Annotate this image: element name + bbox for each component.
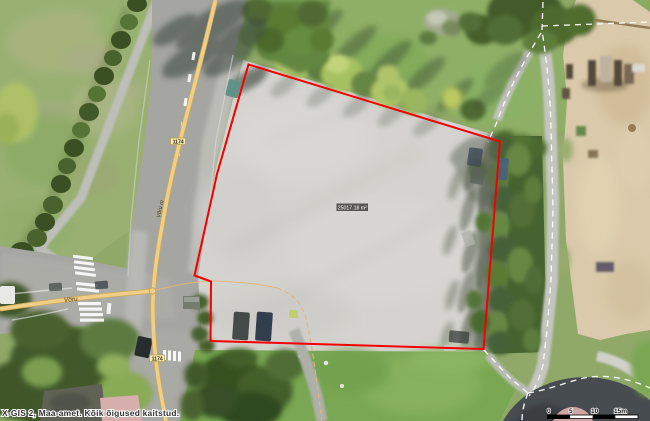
svg-text:15m: 15m <box>614 408 627 415</box>
svg-text:25017.18 m²: 25017.18 m² <box>338 205 367 211</box>
svg-text:5: 5 <box>569 408 573 415</box>
svg-text:0: 0 <box>547 408 551 415</box>
svg-text:10: 10 <box>591 408 599 415</box>
svg-text:X-GIS 2, Maa-amet. Kõik õiguse: X-GIS 2, Maa-amet. Kõik õigused kaitstud… <box>2 408 179 418</box>
